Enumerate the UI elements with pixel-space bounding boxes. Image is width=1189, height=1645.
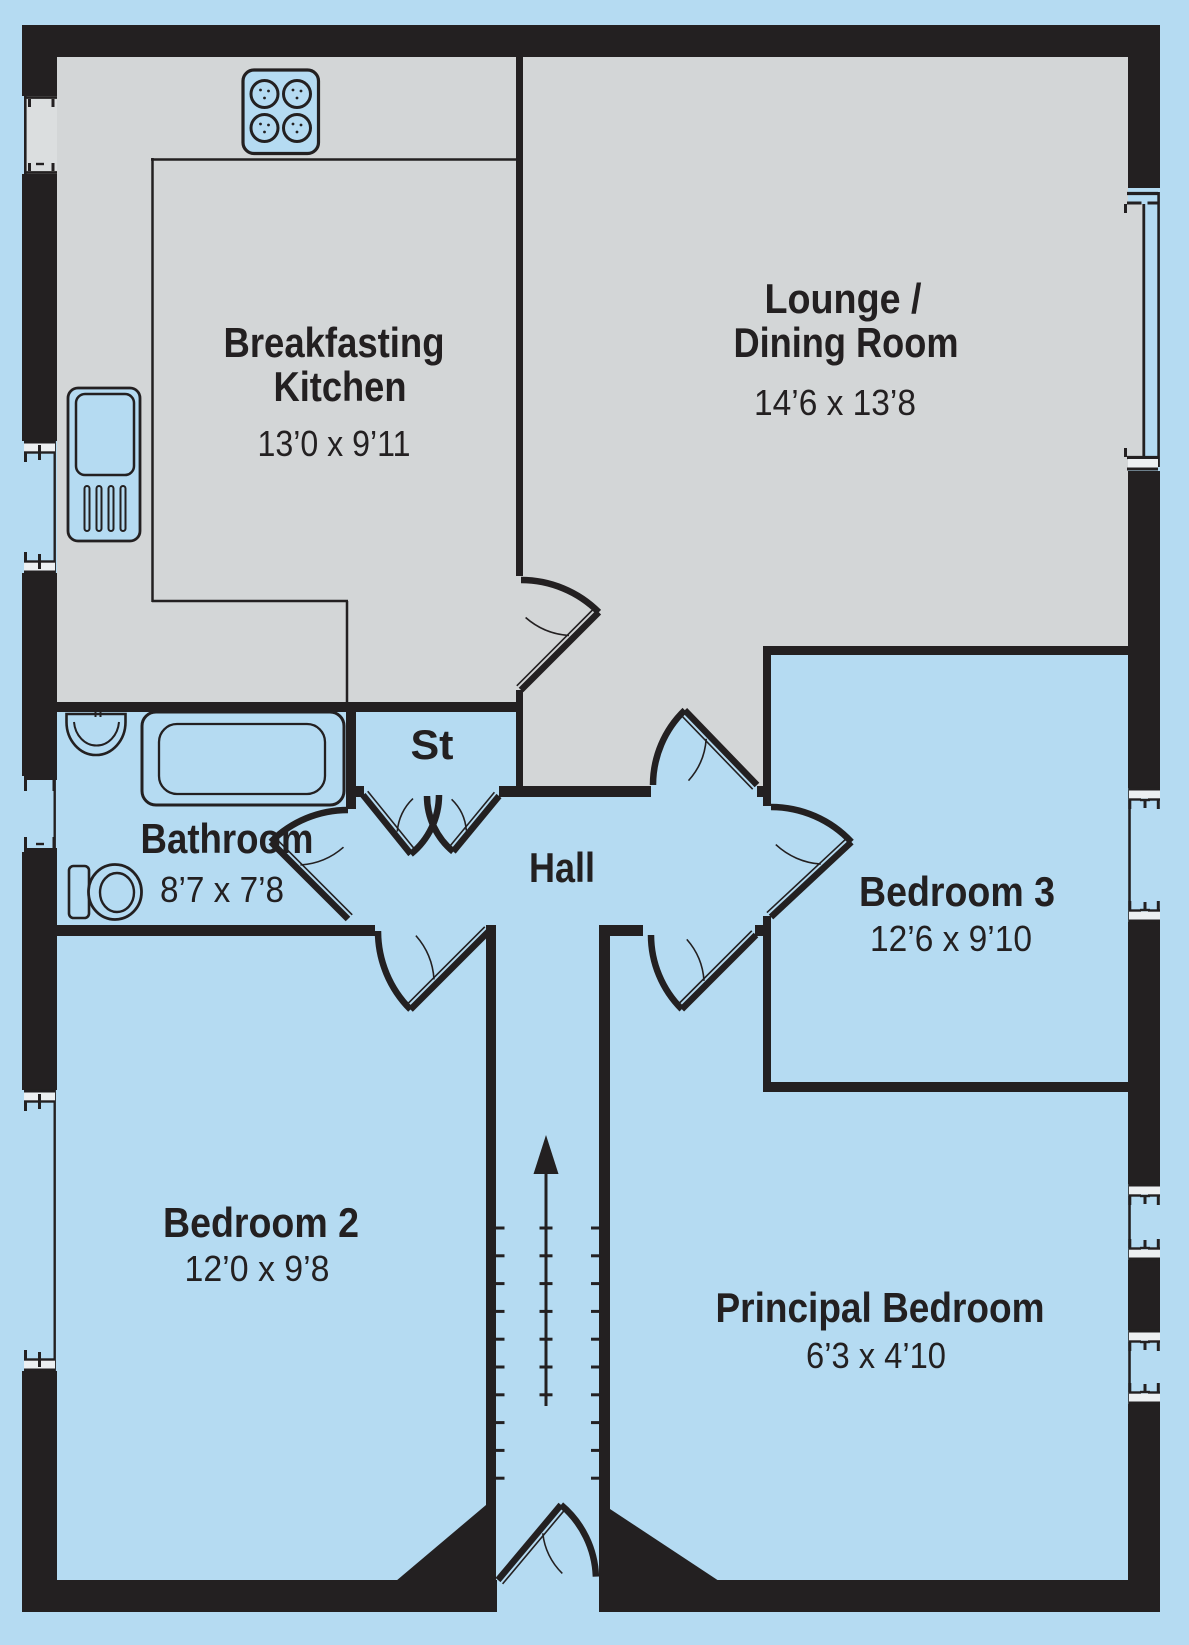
svg-text:Kitchen: Kitchen: [274, 363, 407, 410]
svg-text:13’0 x 9’11: 13’0 x 9’11: [258, 423, 411, 464]
svg-text:Principal Bedroom: Principal Bedroom: [716, 1284, 1045, 1331]
svg-text:Breakfasting: Breakfasting: [224, 319, 445, 366]
svg-text:St: St: [411, 721, 454, 768]
svg-text:Bathroom: Bathroom: [141, 815, 314, 862]
svg-text:12’0 x 9’8: 12’0 x 9’8: [185, 1248, 330, 1289]
svg-text:8’7 x 7’8: 8’7 x 7’8: [160, 869, 284, 910]
svg-text:6’3 x 4’10: 6’3 x 4’10: [806, 1335, 946, 1376]
svg-text:Bedroom 2: Bedroom 2: [163, 1199, 359, 1246]
svg-text:Hall: Hall: [529, 844, 595, 891]
svg-text:12’6 x 9’10: 12’6 x 9’10: [870, 918, 1032, 959]
svg-text:Dining Room: Dining Room: [734, 319, 959, 366]
svg-text:14’6 x 13’8: 14’6 x 13’8: [754, 382, 916, 423]
svg-text:Lounge /: Lounge /: [765, 275, 922, 322]
svg-text:Bedroom 3: Bedroom 3: [859, 868, 1055, 915]
